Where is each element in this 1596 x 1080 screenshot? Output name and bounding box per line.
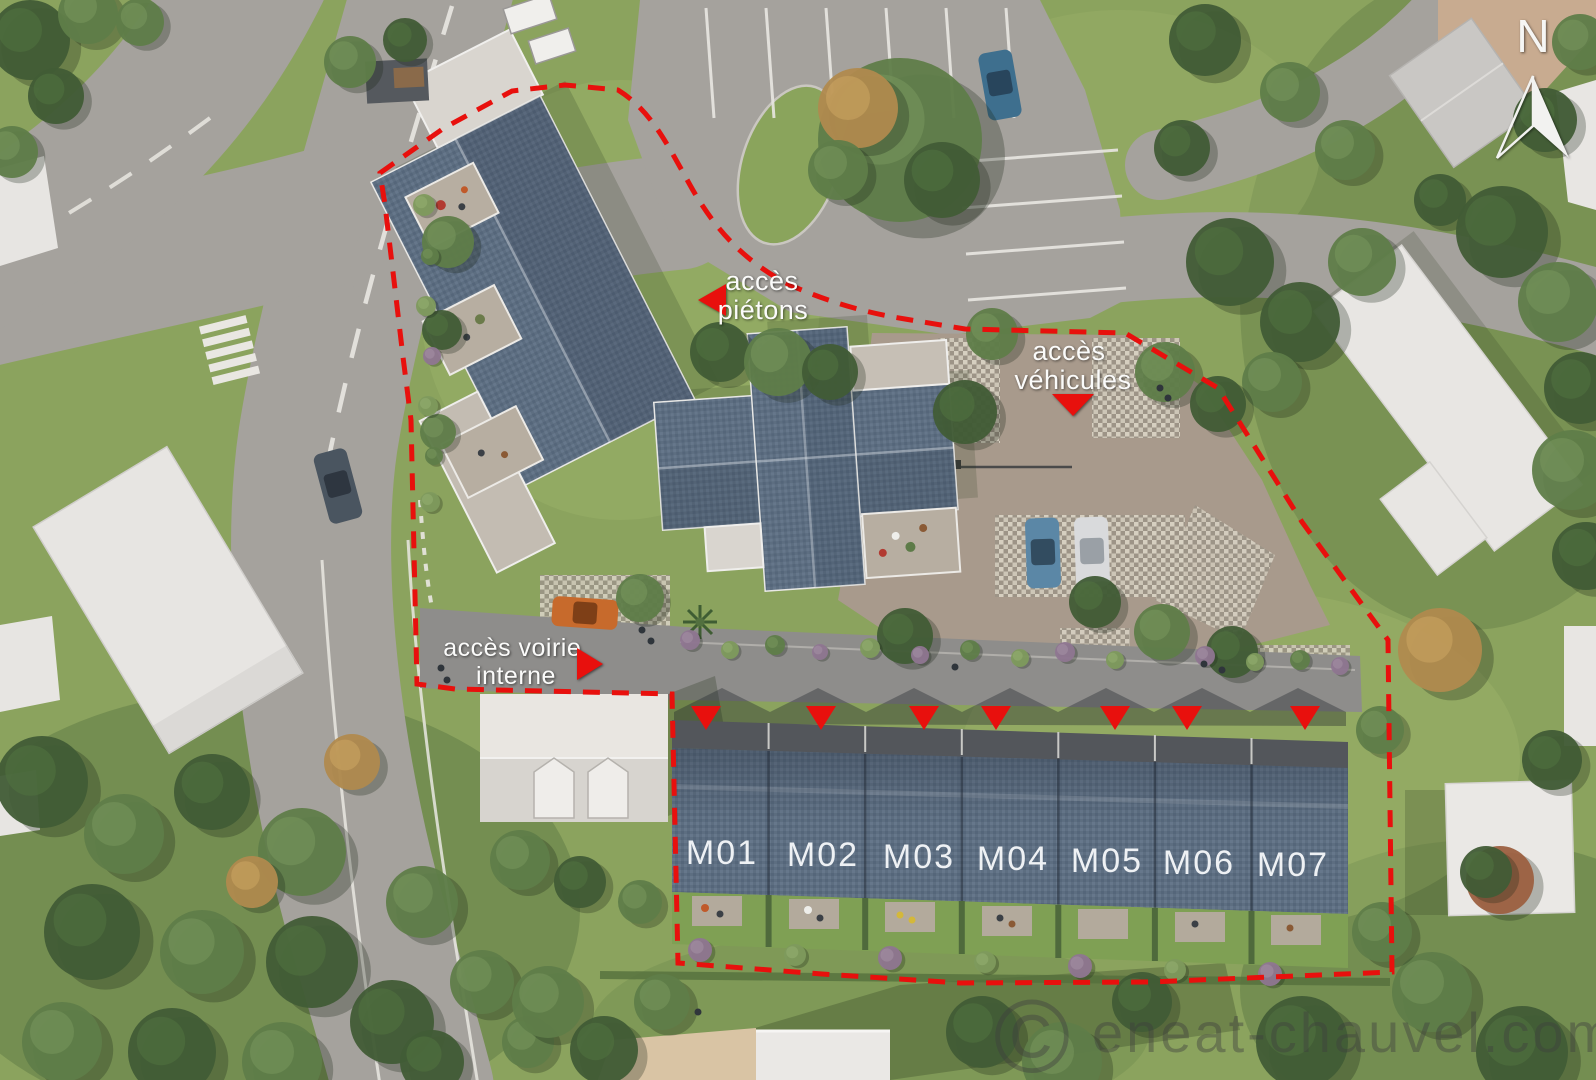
unit-label-m01: M01 xyxy=(686,834,758,872)
unit-label-m06: M06 xyxy=(1163,844,1235,882)
pedestrian xyxy=(695,1009,702,1016)
pedestrian xyxy=(952,664,959,671)
existing-building-fragment xyxy=(0,616,60,712)
pedestrian xyxy=(1157,385,1164,392)
barn-dormer xyxy=(588,758,628,818)
car-orange-site xyxy=(551,596,619,631)
roof-terrace xyxy=(862,508,960,578)
pedestrian xyxy=(438,665,445,672)
north-label: N xyxy=(1516,10,1549,62)
watermark-symbol: © xyxy=(994,979,1071,1080)
pedestrian xyxy=(1219,667,1226,674)
barn-dormer xyxy=(534,758,574,818)
car-blue-site xyxy=(1025,517,1061,588)
pedestrian xyxy=(444,677,451,684)
flat-roof-section xyxy=(705,523,764,571)
pedestrian xyxy=(639,627,646,634)
site-plan-rendering: accès piétons accès véhicules accès voir… xyxy=(0,0,1596,1080)
unit-label-m02: M02 xyxy=(787,836,859,874)
watermark-text: eneat-chauvel.com xyxy=(1092,1001,1596,1064)
existing-building-east-edge xyxy=(1564,626,1596,746)
shed-table xyxy=(393,67,424,89)
pedestrian-access-label: accès piétons xyxy=(718,266,809,325)
pedestrian xyxy=(1201,661,1208,668)
unit-label-m07: M07 xyxy=(1257,846,1329,884)
aerial-site-plan: accès piétons accès véhicules accès voir… xyxy=(0,0,1596,1080)
unit-label-m05: M05 xyxy=(1071,842,1143,880)
townhouse-roof-shading xyxy=(672,748,1348,914)
unit-label-m03: M03 xyxy=(883,838,955,876)
unit-label-m04: M04 xyxy=(977,840,1049,878)
existing-barn xyxy=(480,694,668,822)
pedestrian xyxy=(1165,395,1172,402)
pedestrian xyxy=(648,638,655,645)
